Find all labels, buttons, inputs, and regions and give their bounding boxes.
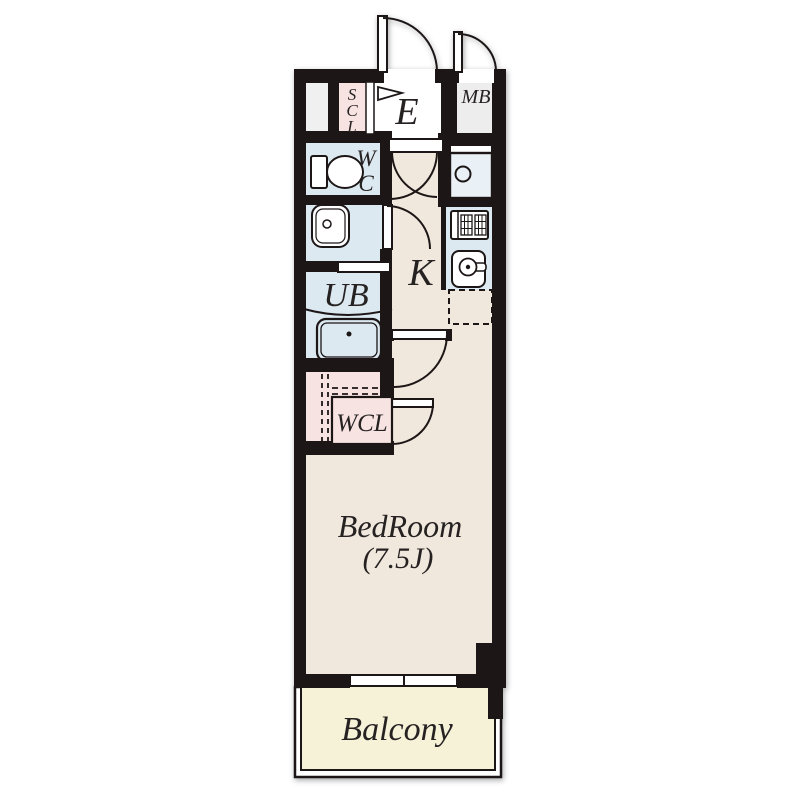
mb-door-leaf [454, 32, 462, 72]
bathtub-drain-icon [347, 332, 352, 337]
kitchen-label: K [407, 252, 435, 294]
toilet-tank-icon [311, 156, 327, 188]
wcl-door-leaf [392, 399, 433, 407]
floor-plan-page: S C L E MB W C UB K WCL BedRoom (7.5J) B… [0, 0, 800, 800]
wcl-label: WCL [336, 410, 387, 437]
ub-door-band [338, 262, 390, 272]
scl-label-l: L [346, 117, 356, 136]
entrance-label: E [394, 91, 418, 133]
wall-entrance-mb [441, 80, 457, 142]
wall-counter-edge [441, 203, 446, 290]
scl-door [366, 82, 374, 134]
faucet-dot-icon [466, 265, 470, 269]
washroom-door-leaf [383, 205, 392, 249]
storage-floor [306, 80, 328, 135]
wc-label-c: C [358, 171, 374, 196]
wall-bottom-left [294, 674, 350, 688]
unit-bath-label: UB [323, 277, 369, 314]
washbasin-drain-icon [323, 220, 331, 228]
mb-door-arc [458, 34, 496, 71]
wall-right [492, 69, 506, 643]
wall-row1-bottom [294, 131, 392, 143]
entrance-doorway-gap [384, 69, 435, 83]
meter-box-label: MB [461, 86, 491, 108]
bedroom-label: BedRoom [338, 508, 462, 544]
balcony-label: Balcony [341, 711, 453, 748]
entrance-door-arc [383, 18, 437, 71]
mb-doorway-gap [459, 69, 494, 83]
wall-bottom-right [457, 674, 506, 688]
wall-wc-bottom [294, 195, 392, 205]
hall-doorframe [389, 139, 443, 152]
bedroom-size-label: (7.5J) [363, 542, 434, 575]
entrance-door-leaf [378, 16, 387, 72]
wall-balcony-stub [488, 688, 503, 719]
bedroom-door-leaf [392, 330, 447, 339]
wall-left [294, 69, 306, 688]
wc-label-w: W [356, 146, 377, 171]
floor-plan-canvas: S C L E MB W C UB K WCL BedRoom (7.5J) B… [0, 0, 800, 800]
floor-plan: S C L E MB W C UB K WCL BedRoom (7.5J) B… [294, 16, 506, 777]
